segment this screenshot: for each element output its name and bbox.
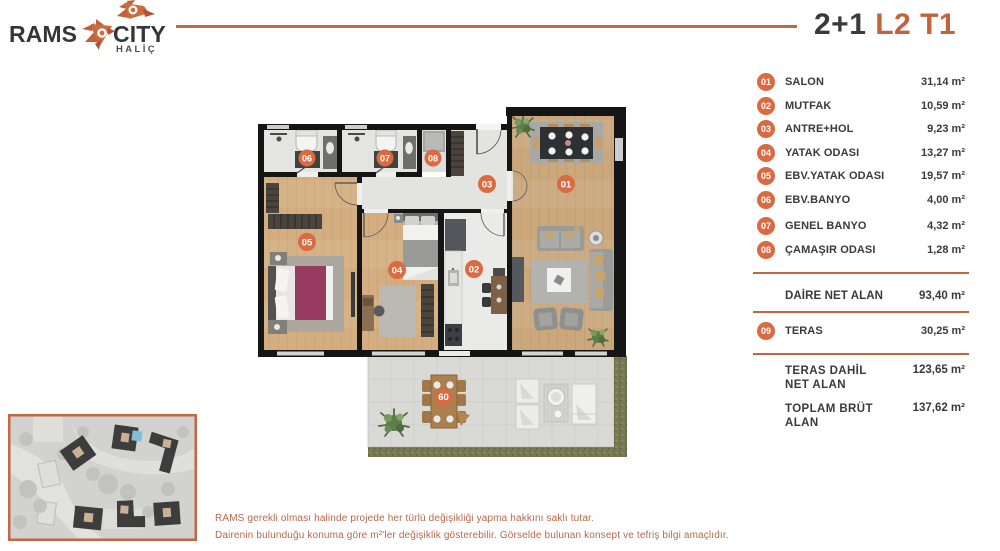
svg-text:02: 02 [469, 265, 480, 276]
svg-text:07: 07 [380, 154, 390, 164]
svg-text:04: 04 [392, 266, 403, 277]
svg-text:05: 05 [302, 238, 313, 249]
svg-text:01: 01 [561, 180, 572, 191]
svg-text:08: 08 [428, 154, 438, 164]
svg-text:09: 09 [438, 391, 449, 402]
svg-text:03: 03 [482, 180, 493, 191]
svg-text:06: 06 [302, 154, 312, 164]
